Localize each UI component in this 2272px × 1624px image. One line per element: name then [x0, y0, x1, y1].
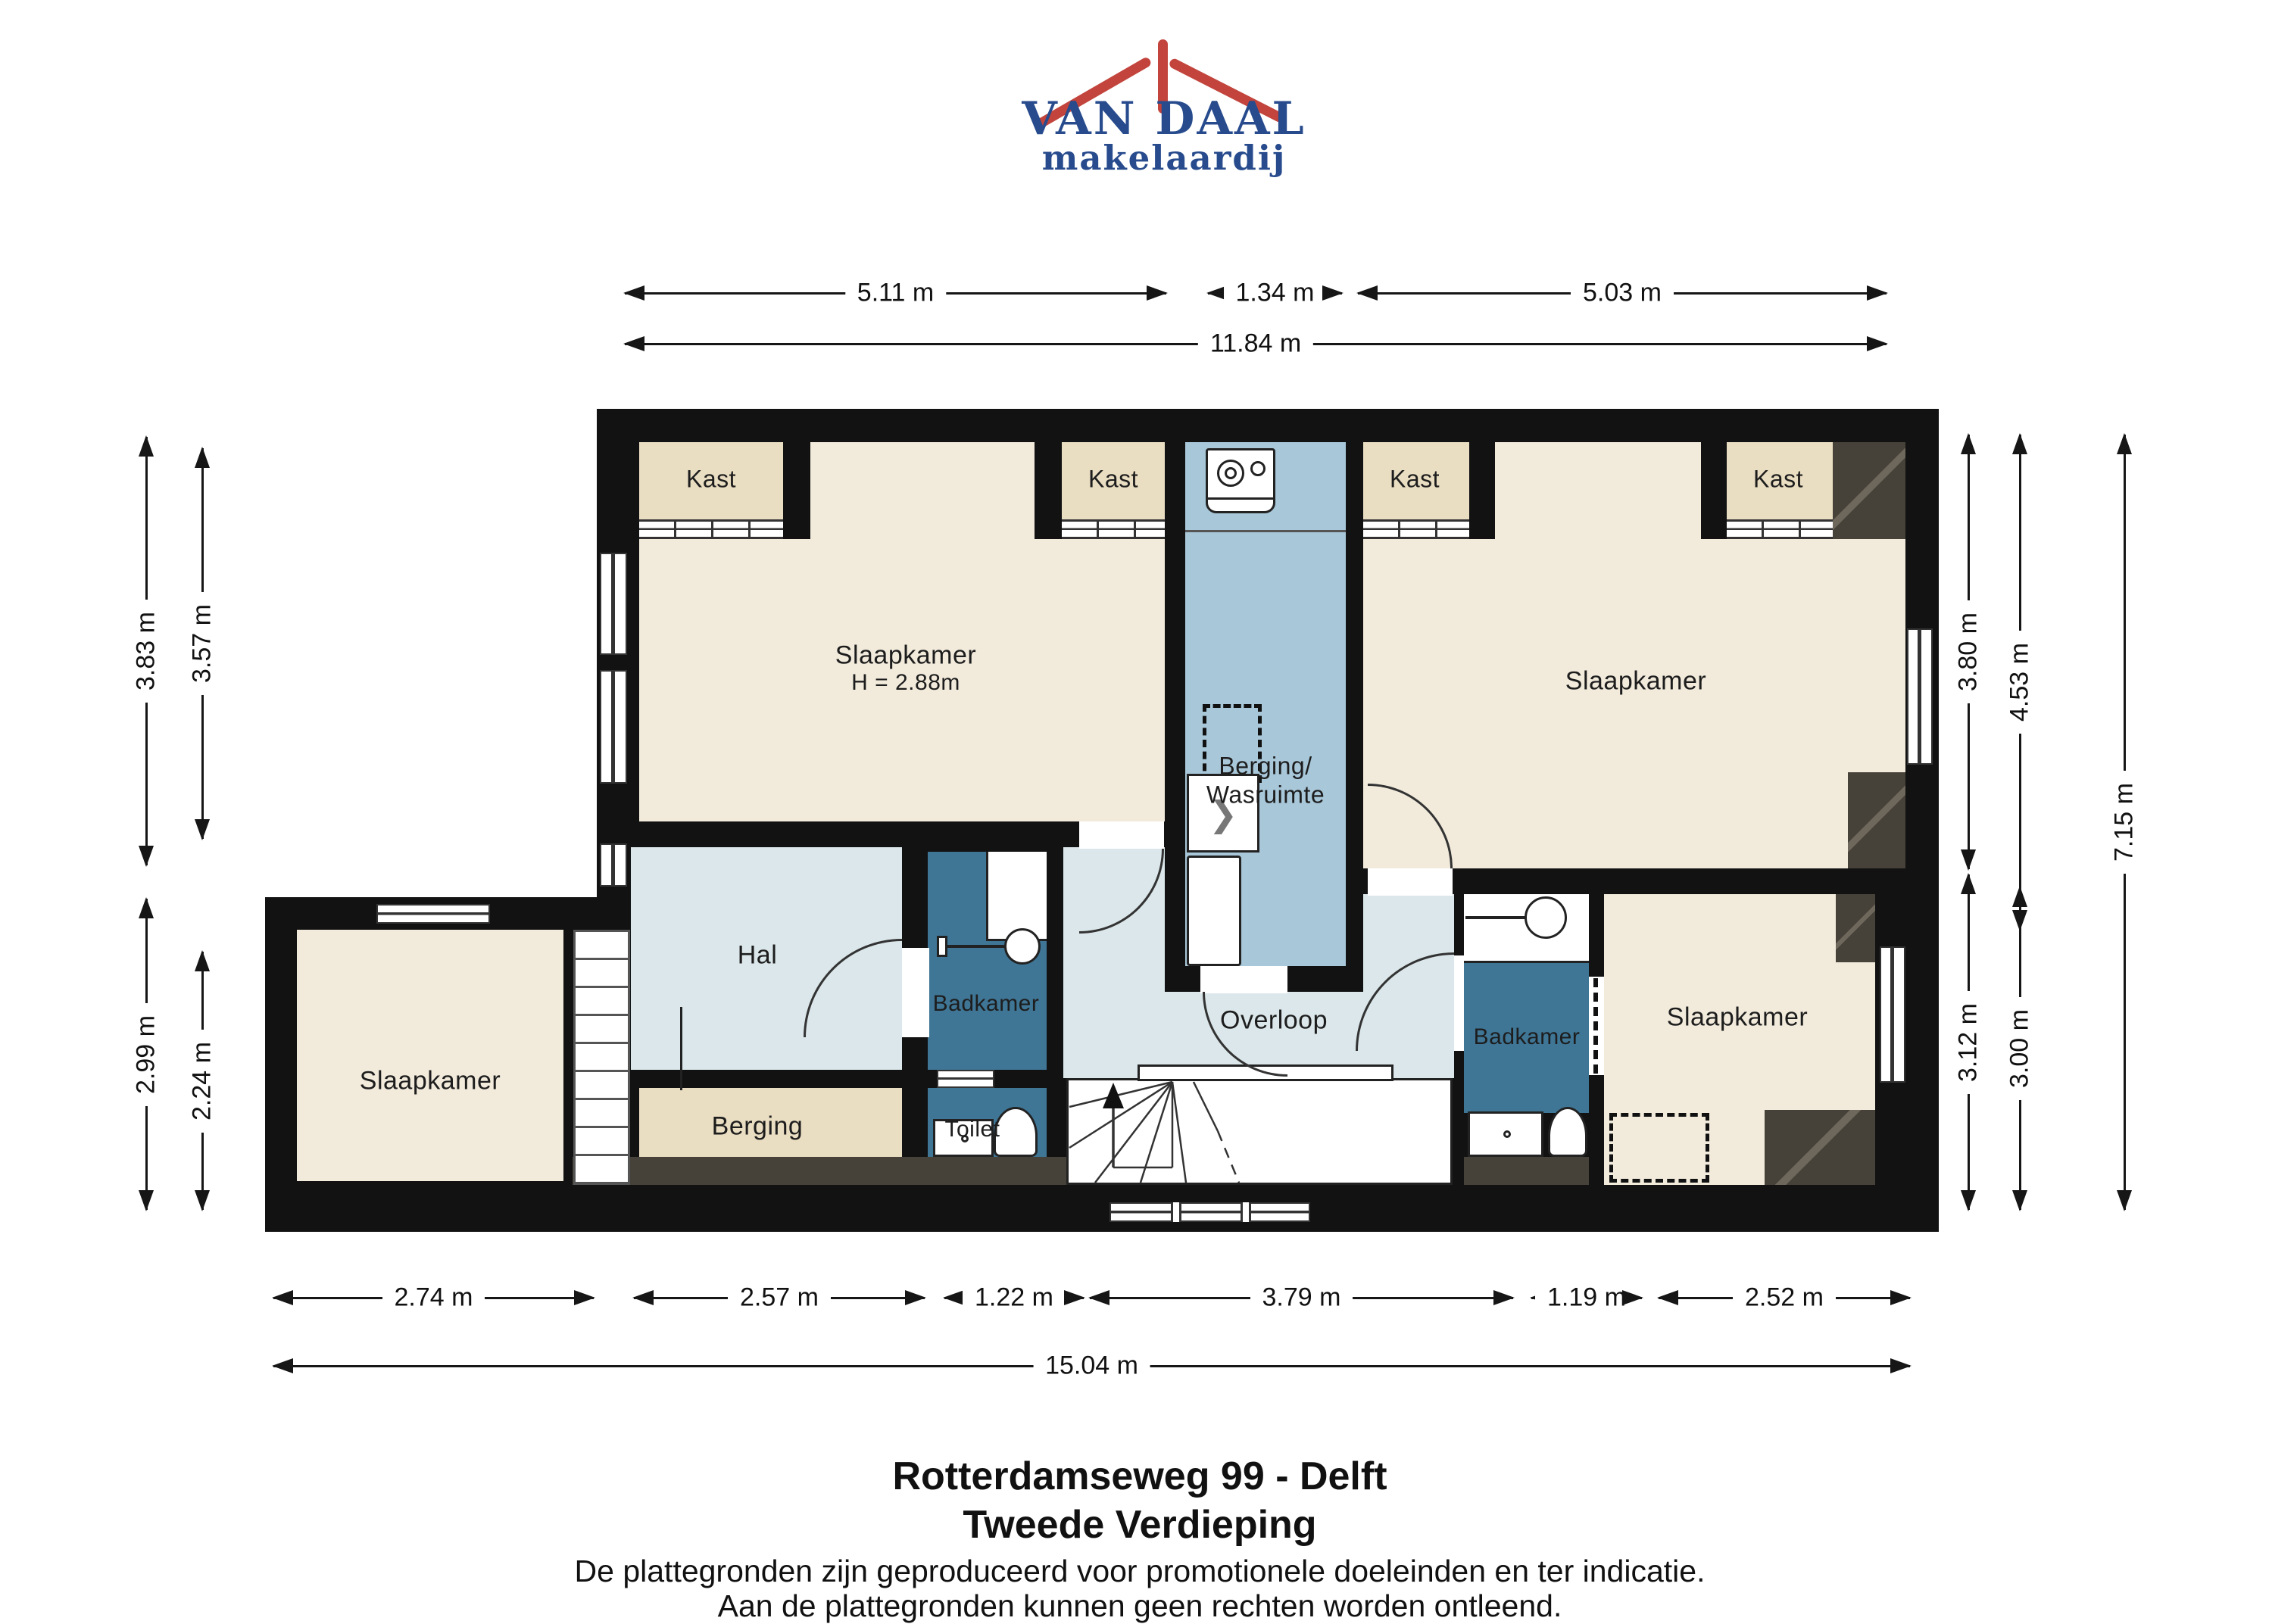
kast-2-rail [1062, 519, 1165, 539]
page-subtitle: Tweede Verdieping [0, 1502, 2272, 1548]
label-kast-2: Kast [1088, 466, 1138, 494]
window-right-top [1907, 628, 1933, 765]
shower-stall [986, 852, 1047, 941]
label-kast-4: Kast [1753, 466, 1803, 494]
sliding-door-dashed [1593, 978, 1598, 1074]
sloped-roof-patch-br-top [1836, 894, 1875, 962]
door-opening-badkamer-left [902, 948, 929, 1037]
dim-label: 2.52 m [1733, 1283, 1836, 1313]
label-slaapkamer-bl: Slaapkamer [360, 1067, 501, 1096]
shelf-line [1185, 530, 1346, 532]
sloped-roof-patch-topright [1833, 442, 1905, 539]
label-berging-wasruimte-1: Berging/ [1219, 753, 1312, 781]
sloped-roof-strip-badkamer-right [1464, 1157, 1589, 1185]
stairs-up-arrow-icon [1066, 1078, 1453, 1185]
dim-label: 2.57 m [728, 1283, 831, 1313]
label-kast-1: Kast [686, 466, 736, 494]
floorplan-page: { "logo": { "line1": "VAN DAAL", "line2"… [0, 0, 2272, 1606]
label-badkamer-left: Badkamer [933, 991, 1040, 1017]
stairs-left-strip [573, 930, 630, 1185]
dim-bottom-1: 2.74 m [272, 1285, 595, 1312]
dim-label: 1.19 m [1535, 1283, 1638, 1313]
window-divider [1171, 1202, 1181, 1222]
faucet-icon [1465, 916, 1528, 919]
window-divider [1241, 1202, 1251, 1222]
mirror-icon [1525, 896, 1567, 939]
sink-icon [1468, 1111, 1543, 1157]
label-kast-3: Kast [1390, 466, 1440, 494]
label-badkamer-right: Badkamer [1474, 1024, 1581, 1050]
section-mark [680, 1007, 682, 1090]
label-slaapkamer-tr: Slaapkamer [1565, 667, 1706, 697]
sloped-roof-patch-right-mid [1848, 772, 1905, 868]
label-berging: Berging [712, 1112, 804, 1142]
dim-bottom-6: 2.52 m [1657, 1285, 1912, 1312]
dim-label: 1.22 m [963, 1283, 1066, 1313]
label-slaapkamer-br: Slaapkamer [1667, 1003, 1808, 1033]
door-opening-badkamer-right [1454, 955, 1464, 1051]
kast-2-wall-stub [1035, 442, 1062, 539]
kast-3-rail [1363, 519, 1469, 539]
badkamer-right-counter [1464, 894, 1589, 963]
window-left-1 [600, 553, 627, 655]
window-wing-top [376, 904, 490, 924]
dim-bottom-3: 1.22 m [943, 1285, 1085, 1312]
disclaimer-line-2: Aan de plattegronden kunnen geen rechten… [0, 1588, 2272, 1624]
sloped-roof-strip-bottomleft [573, 1157, 1083, 1185]
door-opening-wasruimte [1200, 966, 1287, 993]
dim-label: 2.74 m [382, 1283, 485, 1313]
dim-bottom-total: 15.04 m [272, 1353, 1912, 1380]
page-title: Rotterdamseweg 99 - Delft [0, 1454, 2272, 1499]
dim-label: 3.79 m [1250, 1283, 1353, 1313]
door-opening-slaapkamer-tl [1079, 821, 1164, 849]
window-right-bottom [1880, 946, 1905, 1083]
label-berging-wasruimte-2: Wasruimte [1206, 781, 1325, 809]
room-slaapkamer-bottomleft [297, 930, 563, 1181]
kast-1-wall-stub [783, 442, 810, 539]
disclaimer-line-1: De plattegronden zijn geproduceerd voor … [0, 1554, 2272, 1589]
glass-panel-toilet [937, 1070, 994, 1088]
closet-dashed-outline [1609, 1113, 1709, 1183]
label-overloop: Overloop [1220, 1006, 1328, 1036]
label-toilet: Toilet [944, 1117, 1000, 1142]
window-left-3 [600, 843, 627, 887]
label-slaapkamer-tl: Slaapkamer [835, 641, 976, 671]
dim-bottom-4: 3.79 m [1088, 1285, 1515, 1312]
washing-machine-icon [1206, 448, 1275, 513]
label-slaapkamer-tl-height: H = 2.88m [851, 670, 960, 696]
label-hal: Hal [738, 941, 778, 971]
door-opening-slaapkamer-tr [1368, 868, 1453, 896]
kast-1-rail [639, 519, 783, 539]
shower-bracket [937, 936, 947, 957]
kast-3-wall-stub [1469, 442, 1495, 539]
shower-icon [1004, 928, 1041, 965]
window-bottom-center [1109, 1202, 1310, 1222]
sloped-roof-patch-br-bottom [1765, 1110, 1875, 1185]
cabinet-icon [1187, 856, 1241, 966]
kast-4-rail [1727, 519, 1833, 539]
dim-label: 15.04 m [1033, 1351, 1150, 1381]
window-left-2 [600, 670, 627, 784]
kast-4-wall-stub [1701, 442, 1727, 539]
dim-bottom-5: 1.19 m [1530, 1285, 1643, 1312]
dim-bottom-2: 2.57 m [632, 1285, 926, 1312]
